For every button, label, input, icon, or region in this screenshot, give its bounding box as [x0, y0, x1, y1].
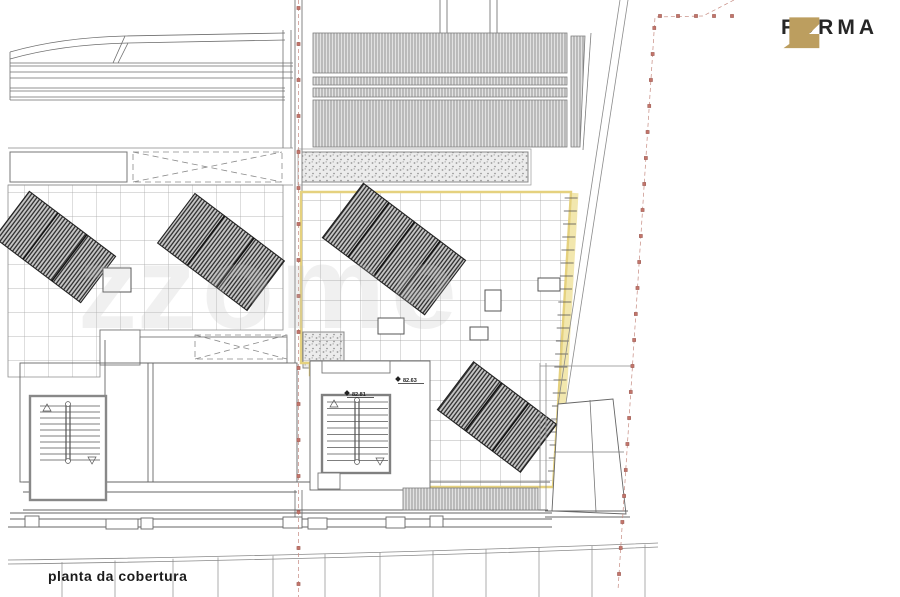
- level-value-2: 82.63: [403, 378, 417, 384]
- floor-plan-drawing: 82.81 82.63: [0, 0, 900, 597]
- right-lower-block: [545, 399, 628, 514]
- gravel-strip: [302, 152, 528, 182]
- roof-plan-page: 82.81 82.63 zzome FORMA planta da cobert…: [0, 0, 900, 597]
- corrugated-strip-bottom: [403, 488, 538, 510]
- corrugated-roof: [313, 33, 591, 150]
- street-edge-bottom: [8, 543, 658, 564]
- neighbor-roof-bands: [10, 30, 293, 148]
- left-roof-band: [8, 148, 293, 185]
- plan-caption: planta da cobertura: [48, 568, 187, 584]
- z-monogram-icon: [781, 16, 821, 52]
- property-boundary-right: [618, 0, 734, 590]
- forma-logo: FORMA: [781, 16, 878, 40]
- left-rooms-band: [100, 330, 287, 365]
- level-value-1: 82.81: [352, 392, 366, 398]
